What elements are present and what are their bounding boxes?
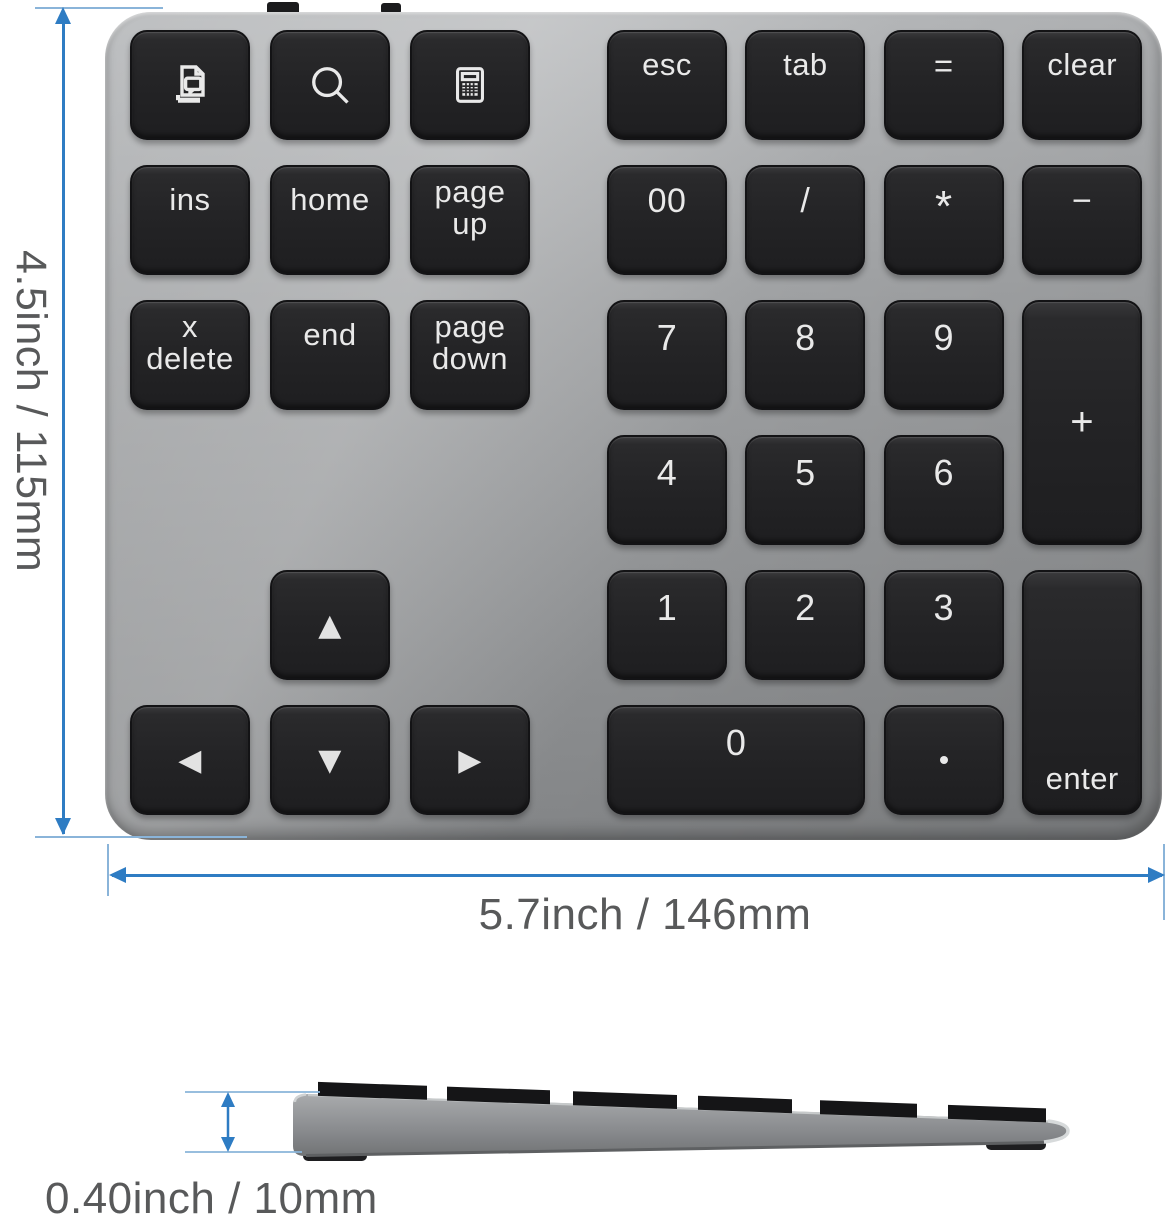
key-screen-doc [130,30,250,140]
key-arrow-down: ▼ [270,705,390,815]
key-arrow-right: ▶ [410,705,530,815]
key-3: 3 [884,570,1004,680]
key-8: 8 [745,300,865,410]
width-arrow-right-icon [1148,867,1165,883]
side-body [293,1094,1069,1156]
key-search [270,30,390,140]
key-calculator [410,30,530,140]
height-arrow-up-icon [55,7,71,24]
thickness-arrow-up-icon [221,1092,235,1107]
key-enter: enter [1022,570,1142,815]
key-multiply: * [884,165,1004,275]
height-dimension-label: 4.5inch / 115mm [6,250,55,572]
numpad-top-view: inshomepageupxdeleteendpagedown▲◀▼▶escta… [105,12,1162,840]
key-minus: − [1022,165,1142,275]
key-6: 6 [884,435,1004,545]
height-arrow-down-icon [55,818,71,835]
thickness-arrow-down-icon [221,1137,235,1152]
width-dimension-label: 5.7inch / 146mm [420,890,870,940]
key-page-up: pageup [410,165,530,275]
key-divide: / [745,165,865,275]
key-end: end [270,300,390,410]
key-9: 9 [884,300,1004,410]
key-equals: = [884,30,1004,140]
key-00: 00 [607,165,727,275]
width-dimension-line [112,874,1162,877]
key-arrow-up: ▲ [270,570,390,680]
key-ins: ins [130,165,250,275]
key-0: 0 [607,705,865,815]
key-1: 1 [607,570,727,680]
key-arrow-left: ◀ [130,705,250,815]
thickness-dimension-label: 0.40inch / 10mm [45,1174,378,1223]
key-5: 5 [745,435,865,545]
key-tab: tab [745,30,865,140]
key-decimal [884,705,1004,815]
key-2: 2 [745,570,865,680]
key-clear: clear [1022,30,1142,140]
key-home: home [270,165,390,275]
key-esc: esc [607,30,727,140]
product-spec-image: inshomepageupxdeleteendpagedown▲◀▼▶escta… [0,0,1175,1223]
key-x-delete: xdelete [130,300,250,410]
key-page-down: pagedown [410,300,530,410]
height-dimension-line [62,12,65,834]
key-4: 4 [607,435,727,545]
height-extension-line-bottom [35,836,247,838]
width-arrow-left-icon [109,867,126,883]
key-7: 7 [607,300,727,410]
key-plus: + [1022,300,1142,545]
